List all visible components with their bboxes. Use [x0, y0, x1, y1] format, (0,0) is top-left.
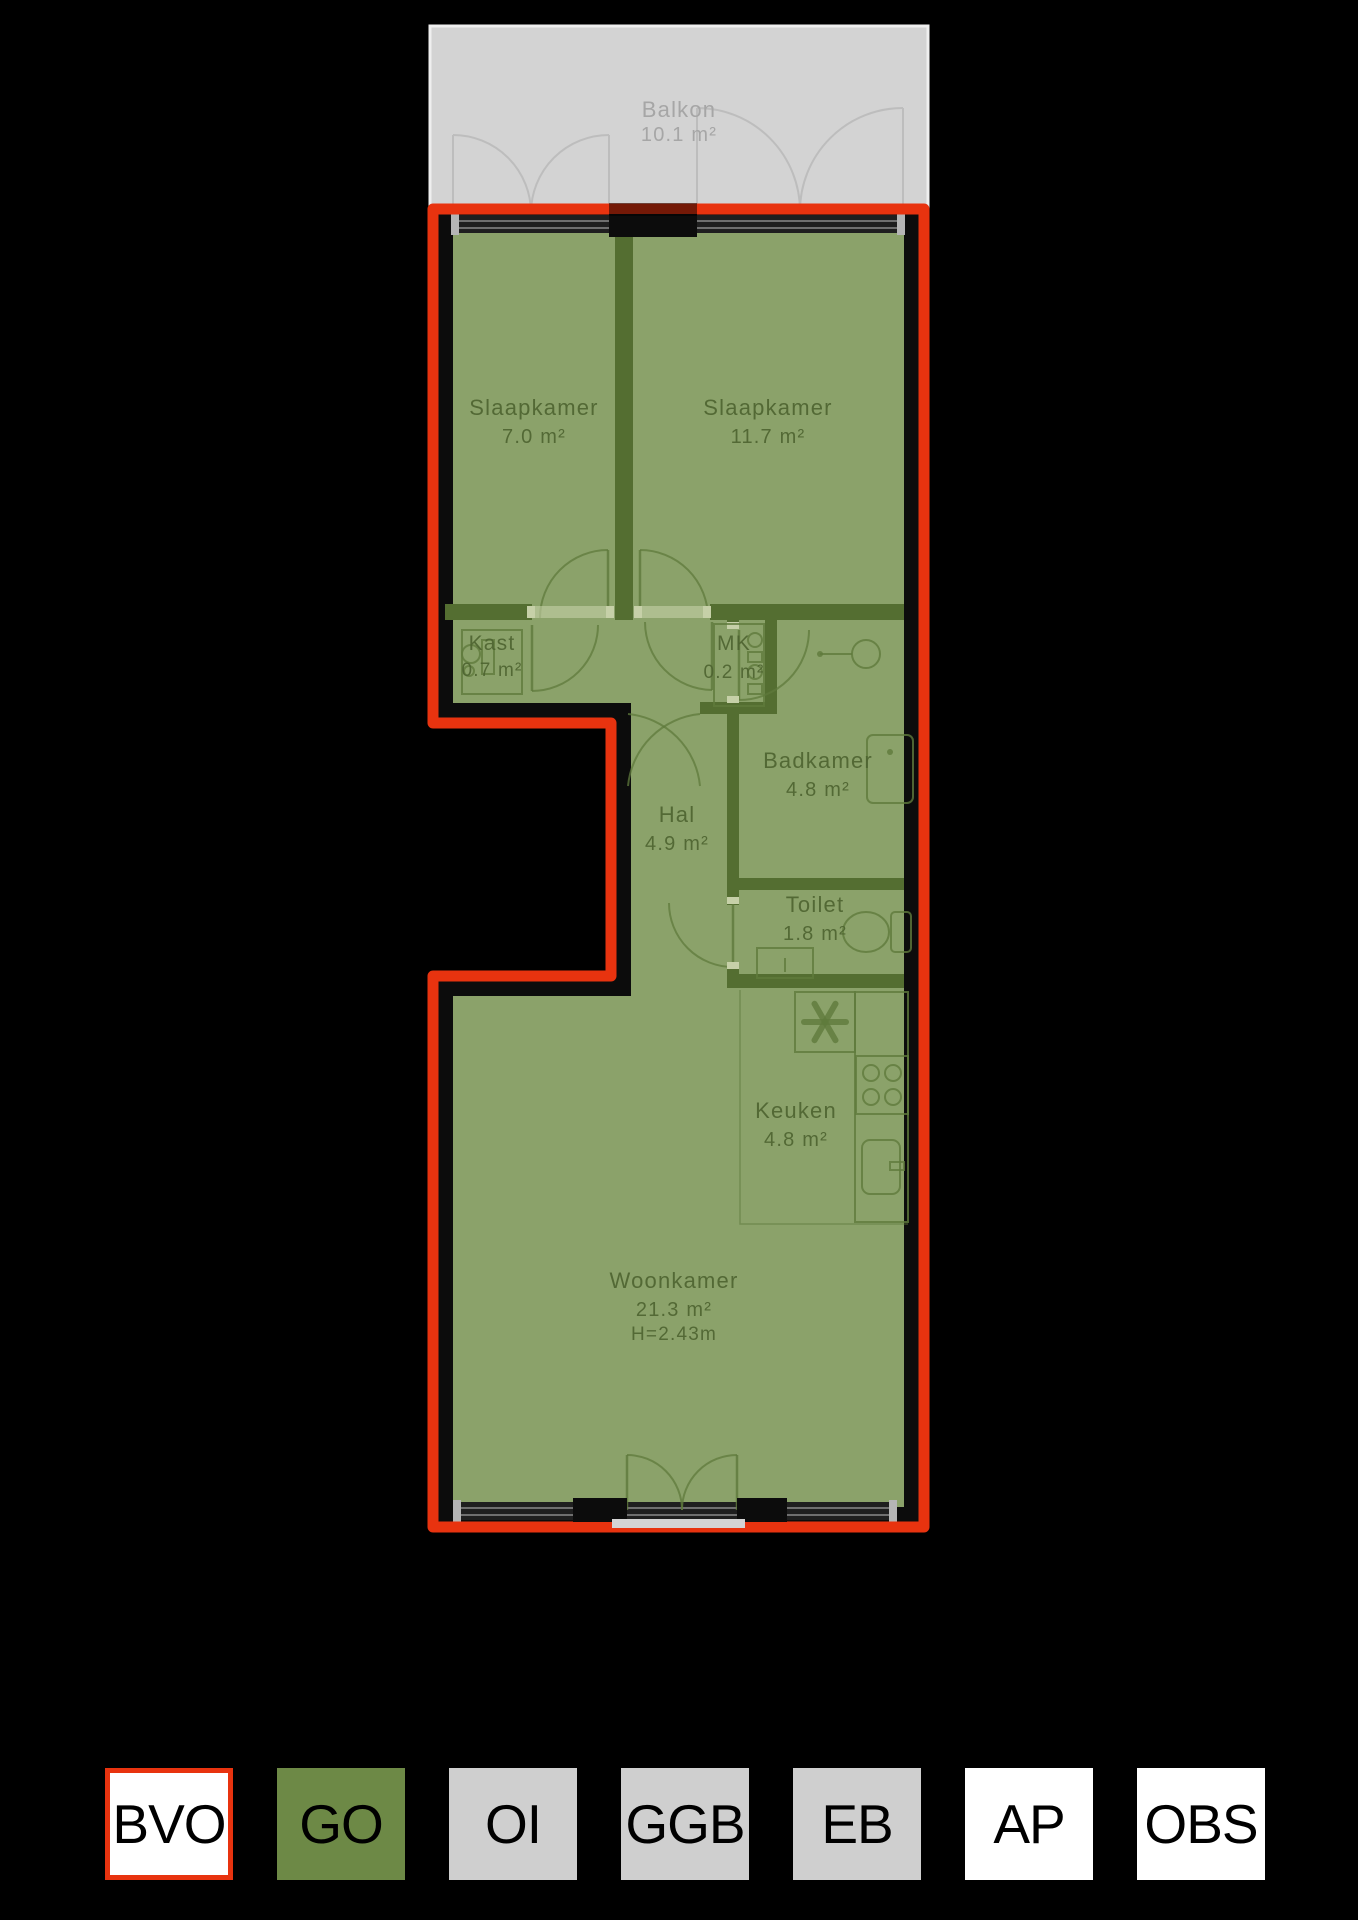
room-area-kast: 0.7 m² — [461, 660, 522, 681]
legend-item-oi: OI — [449, 1768, 577, 1880]
legend-item-ggb: GGB — [621, 1768, 749, 1880]
room-area-mk: 0.2 m² — [703, 662, 764, 683]
facade-pier — [573, 1498, 627, 1522]
wall-mk-bottom — [700, 702, 777, 714]
windows-bottom — [453, 1500, 897, 1522]
facade-pier-shade — [609, 203, 697, 216]
room-height-woonkamer: H=2.43m — [631, 1324, 717, 1345]
room-area-badkamer: 4.8 m² — [786, 779, 850, 801]
room-area-toilet: 1.8 m² — [783, 923, 847, 945]
room-name-keuken: Keuken — [755, 1098, 837, 1123]
legend-label: GGB — [625, 1792, 744, 1856]
room-area-woonkamer: 21.3 m² — [636, 1299, 712, 1321]
wall-toilet-bottom — [727, 974, 904, 988]
floorplan-page: { "plan": { "balcony": { "name": "Balkon… — [0, 0, 1358, 1920]
apartment: Slaapkamer 7.0 m² Slaapkamer 11.7 m² Kas… — [433, 203, 924, 1528]
legend: BVO GO OI GGB EB AP OBS — [105, 1768, 1265, 1880]
door-jamb — [727, 962, 739, 969]
door-jamb — [727, 696, 739, 703]
room-name-badkamer: Badkamer — [763, 748, 873, 773]
room-name-kast: Kast — [469, 632, 516, 655]
window-post — [897, 213, 905, 235]
wall-mk-right — [765, 614, 777, 714]
legend-label: BVO — [112, 1792, 225, 1856]
room-name-slaapkamer-1: Slaapkamer — [469, 395, 598, 420]
balcony-area: 10.1 m² — [641, 124, 717, 146]
room-name-hal: Hal — [659, 802, 696, 827]
balcony-name: Balkon — [642, 97, 716, 122]
legend-label: AP — [993, 1792, 1064, 1856]
facade-pier — [737, 1498, 787, 1522]
room-name-mk: MK — [717, 632, 751, 655]
room-name-slaapkamer-2: Slaapkamer — [703, 395, 832, 420]
wall-bedroom-divider — [615, 229, 633, 620]
room-area-slaapkamer-1: 7.0 m² — [502, 426, 566, 448]
room-name-woonkamer: Woonkamer — [610, 1268, 739, 1293]
window-post — [453, 1500, 461, 1522]
door-jamb — [527, 606, 535, 618]
legend-item-obs: OBS — [1137, 1768, 1265, 1880]
window-post — [889, 1500, 897, 1522]
door-threshold — [641, 606, 704, 618]
room-name-toilet: Toilet — [786, 892, 845, 917]
window-post — [451, 213, 459, 235]
wall-bedroom-south-right — [710, 604, 904, 620]
legend-label: OI — [485, 1792, 541, 1856]
door-jamb — [606, 606, 614, 618]
balcony: Balkon 10.1 m² — [430, 26, 928, 213]
door-threshold — [533, 606, 607, 618]
bathtub-drain — [887, 749, 893, 755]
washbasin-faucet — [817, 651, 823, 657]
door-sill — [612, 1519, 745, 1528]
wall-hall-bath — [727, 698, 739, 884]
legend-item-bvo: BVO — [105, 1768, 233, 1880]
legend-item-ap: AP — [965, 1768, 1093, 1880]
room-area-slaapkamer-2: 11.7 m² — [731, 426, 806, 448]
door-jamb — [634, 606, 642, 618]
legend-item-eb: EB — [793, 1768, 921, 1880]
floor-plan: Balkon 10.1 m² — [0, 0, 1358, 1920]
wall-bath-toilet — [727, 878, 904, 890]
legend-label: EB — [821, 1792, 892, 1856]
door-jamb — [703, 606, 711, 618]
door-jamb — [727, 897, 739, 904]
wall-bedroom-south-left — [445, 604, 532, 620]
facade-pier — [609, 214, 697, 237]
legend-label: GO — [299, 1792, 383, 1856]
room-area-keuken: 4.8 m² — [764, 1129, 828, 1151]
legend-item-go: GO — [277, 1768, 405, 1880]
room-area-hal: 4.9 m² — [645, 833, 709, 855]
legend-label: OBS — [1144, 1792, 1257, 1856]
window — [455, 1502, 897, 1520]
